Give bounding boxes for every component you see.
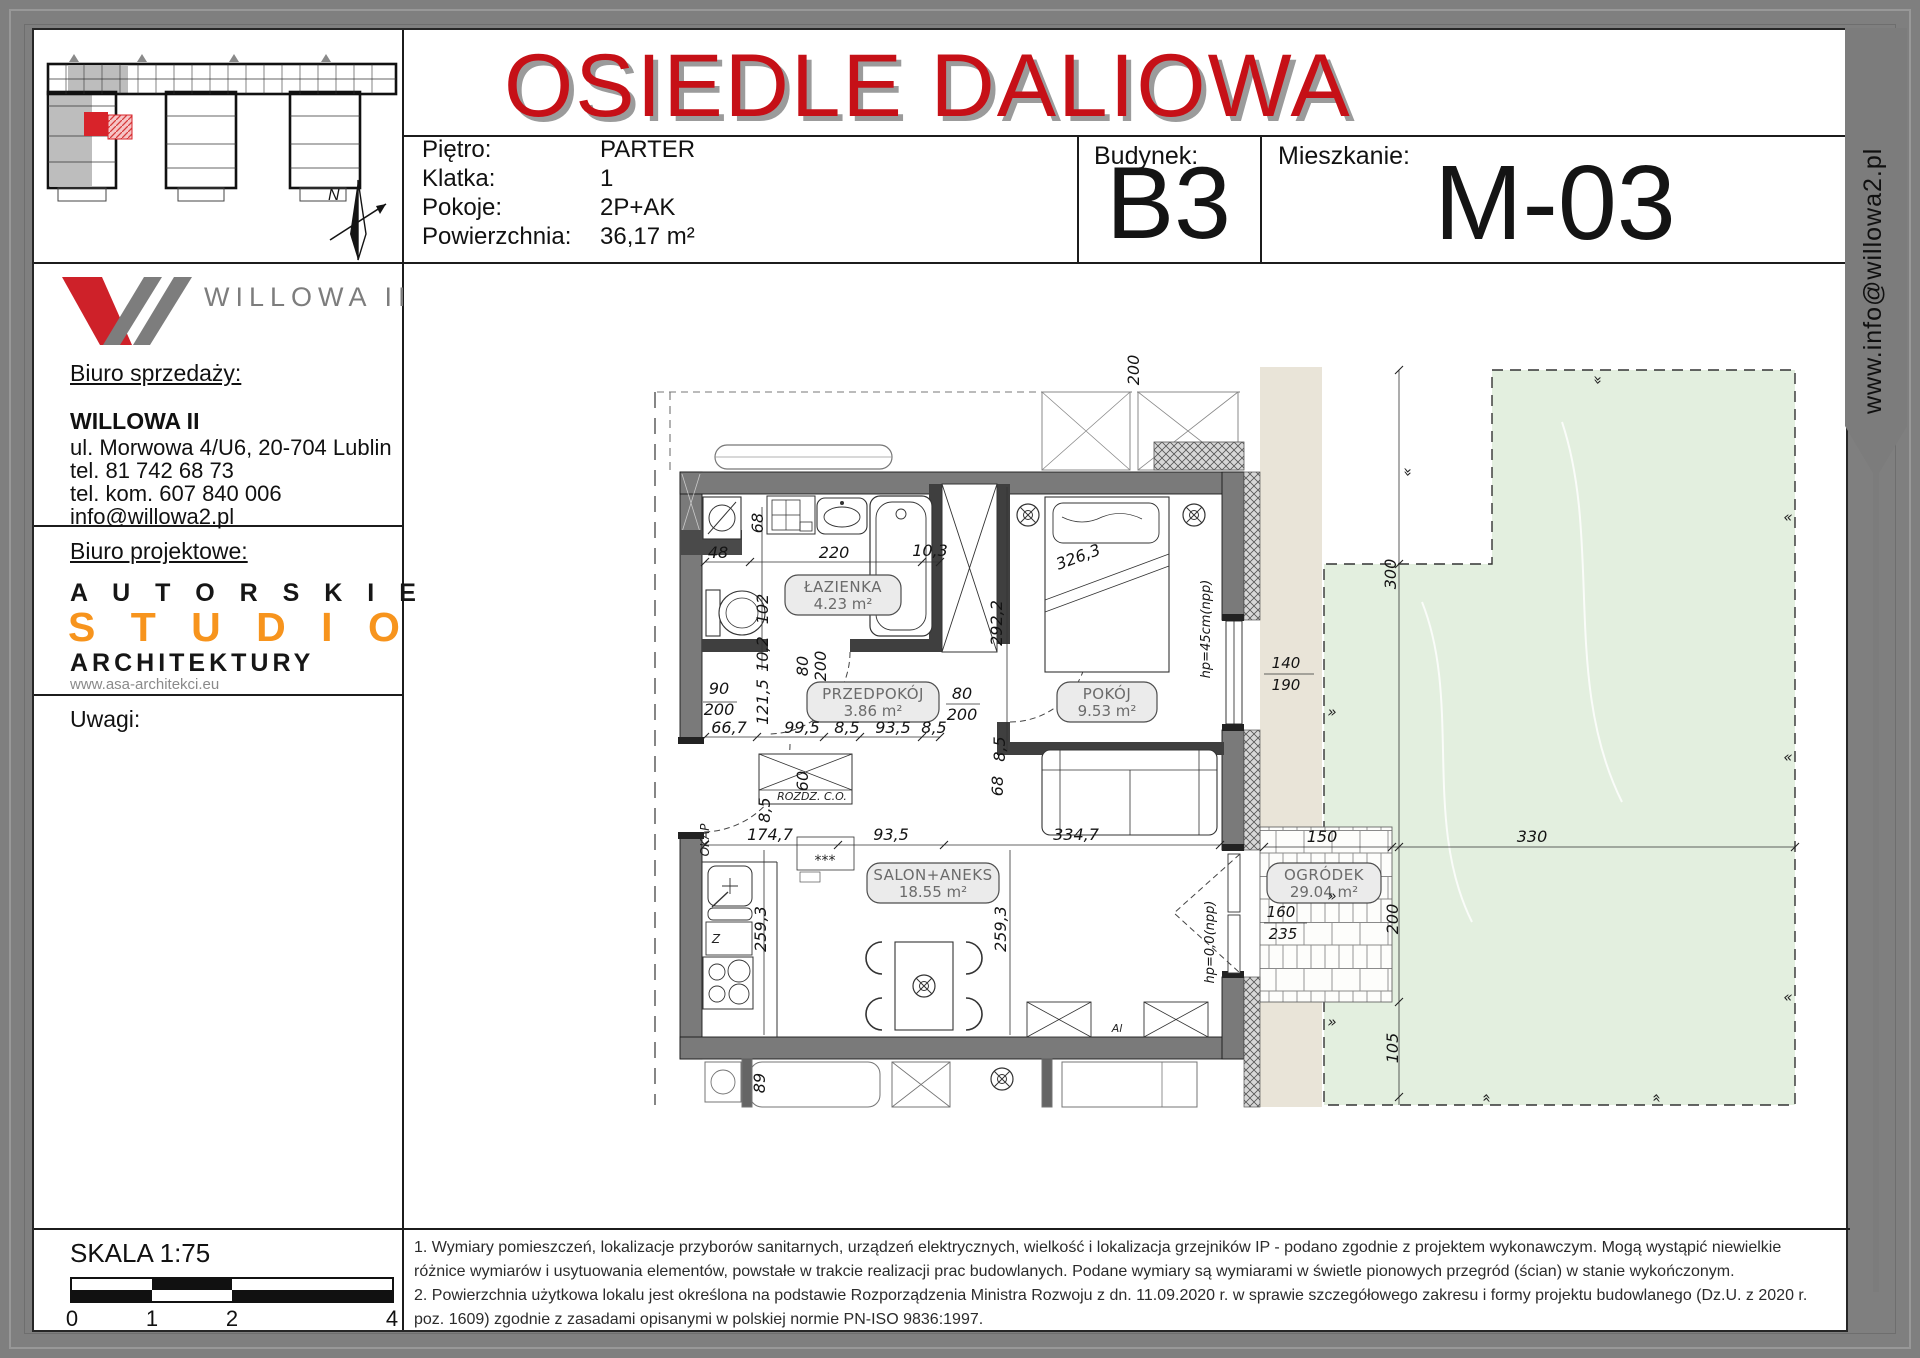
scale-tick-0: 0	[66, 1306, 78, 1332]
bed	[1045, 497, 1169, 672]
plan-annotation: «	[1783, 748, 1792, 766]
plan-dimension: 140	[1272, 654, 1301, 672]
scale-label: SKALA 1:75	[70, 1238, 210, 1269]
plan-dimension: 10,2	[753, 636, 772, 672]
plan-dimension: 89	[750, 1073, 769, 1093]
plan-dimension: 259,3	[991, 906, 1010, 952]
plan-dimension: 330	[1517, 827, 1548, 846]
plan-dimension: 68	[748, 513, 767, 533]
plan-dimension: 8,5	[990, 736, 1009, 761]
scale-bar	[70, 1277, 394, 1303]
plan-annotation: «	[1327, 888, 1336, 906]
sofa	[1042, 750, 1217, 835]
plan-annotation: OKAP	[698, 823, 712, 857]
footnotes: 1. Wymiary pomieszczeń, lokalizacje przy…	[414, 1236, 1834, 1332]
plan-dimension: 80	[952, 684, 972, 703]
plan-dimension: 259,3	[751, 906, 770, 952]
plan-dimension: 105	[1383, 1033, 1402, 1064]
plan-dimension: 68	[988, 776, 1007, 796]
room-name: POKÓJ	[1083, 684, 1132, 703]
room-area: 18.55 m²	[899, 883, 967, 901]
website-ribbon: www.info@willowa2.pl	[1845, 28, 1907, 426]
wall-right-1	[1222, 472, 1244, 620]
highlighted-unit	[84, 112, 108, 136]
highlighted-garden	[108, 115, 132, 139]
plan-annotation: Z	[711, 932, 721, 946]
plan-dimension: 121,5	[753, 679, 772, 725]
budynek-value: B3	[1077, 152, 1260, 254]
footnote-2: 2. Powierzchnia użytkowa lokalu jest okr…	[414, 1284, 1834, 1332]
plan-annotation: Al	[1111, 1022, 1123, 1035]
plan-annotation: «	[1588, 375, 1606, 384]
plan-dimension: hp=0,0(npp)	[1203, 901, 1218, 984]
sales-office-heading: Biuro sprzedaży:	[70, 360, 241, 387]
plan-annotation: ***	[815, 853, 836, 869]
footnote-1: 1. Wymiary pomieszczeń, lokalizacje przy…	[414, 1236, 1834, 1284]
scale-tick-2: 2	[226, 1306, 238, 1332]
drawing-sheet: OSIEDLE DALIOWA Piętro: PARTER Klatka: 1…	[0, 0, 1920, 1358]
room-area: 4.23 m²	[814, 595, 873, 613]
plan-dimension: 200	[1383, 904, 1402, 935]
info-value-powierzchnia: 36,17 m²	[600, 223, 695, 251]
plan-dimension: 60	[793, 771, 812, 791]
website-ribbon-text: www.info@willowa2.pl	[1859, 44, 1888, 414]
studio-logo-line3: ARCHITEKTURY	[70, 649, 314, 678]
plan-dimension: 190	[1272, 676, 1301, 694]
plan-dimension: 102	[753, 594, 772, 625]
plan-dimension: 90	[709, 679, 729, 698]
plan-dimension: 200	[811, 651, 830, 682]
plan-dimension: 93,5	[875, 718, 911, 737]
sales-company: WILLOWA II	[70, 408, 199, 435]
sales-email: info@willowa2.pl	[70, 504, 234, 530]
info-label-klatka: Klatka:	[422, 165, 495, 193]
plan-dimension: 8,5	[755, 797, 774, 822]
wall-right-3	[1222, 977, 1244, 1059]
toilet	[706, 590, 720, 636]
plan-annotation: «	[1478, 1093, 1496, 1102]
plan-dimension: 174,7	[747, 825, 794, 844]
info-value-pokoje: 2P+AK	[600, 194, 675, 222]
willowa-logo-icon	[56, 273, 201, 351]
room-name: ŁAZIENKA	[803, 578, 882, 596]
plan-dimension: hp=45cm(npp)	[1199, 580, 1214, 679]
garden-area	[1324, 370, 1795, 1105]
plan-dimension: 200	[947, 705, 978, 724]
plan-dimension: 8,5	[921, 718, 946, 737]
studio-website: www.asa-architekci.eu	[70, 676, 219, 693]
north-letter: N	[328, 187, 340, 204]
plan-annotation: «	[1327, 1014, 1336, 1032]
design-office-heading: Biuro projektowe:	[70, 538, 248, 565]
willowa-logo-text: WILLOWA II	[204, 282, 412, 313]
plan-dimension: 292,2	[987, 600, 1006, 646]
plan-annotation: «	[1783, 508, 1792, 526]
divider-sidebar-2	[34, 694, 402, 696]
plan-annotation: «	[1327, 704, 1336, 722]
info-label-pokoje: Pokoje:	[422, 194, 502, 222]
studio-logo-line2: S T U D I O	[68, 604, 412, 651]
plan-dimension: 235	[1269, 925, 1298, 943]
website-ribbon-stem	[1873, 470, 1879, 1292]
room-area: 29.04 m²	[1290, 883, 1358, 901]
north-compass: N	[312, 176, 402, 262]
plan-dimension: 99,5	[784, 718, 820, 737]
plan-dimension: 93,5	[873, 825, 909, 844]
room-name: OGRÓDEK	[1284, 865, 1365, 884]
divider-footer	[34, 1228, 1850, 1230]
plan-annotation: «	[1398, 467, 1416, 476]
scale-tick-4: 4	[386, 1306, 398, 1332]
wall-right-2	[1222, 730, 1244, 850]
plan-dimension: 220	[819, 543, 850, 562]
plan-annotation: ROZDZ. C.O.	[777, 790, 847, 803]
plan-dimension: 48	[708, 543, 728, 562]
floor-plan-svg: ŁAZIENKA4.23 m²PRZEDPOKÓJ3.86 m²POKÓJ9.5…	[402, 264, 1850, 1228]
plan-dimension: 80	[793, 656, 812, 676]
room-area: 9.53 m²	[1078, 702, 1137, 720]
project-title: OSIEDLE DALIOWA	[504, 34, 1352, 137]
plan-dimension: 300	[1381, 559, 1400, 590]
plan-dimension: 66,7	[711, 718, 747, 737]
info-label-pietro: Piętro:	[422, 136, 491, 164]
plan-dimension: 10,3	[912, 541, 948, 560]
info-label-powierzchnia: Powierzchnia:	[422, 223, 571, 251]
wall-bottom	[680, 1037, 1244, 1059]
mieszkanie-value: M-03	[1260, 150, 1850, 256]
uwagi-label: Uwagi:	[70, 706, 140, 733]
plan-dimension: 160	[1267, 903, 1296, 921]
plan-annotation: «	[1648, 1093, 1666, 1102]
plan-annotation: «	[1783, 988, 1792, 1006]
plan-dimension: 334,7	[1053, 825, 1100, 844]
scale-tick-1: 1	[146, 1306, 158, 1332]
room-name: SALON+ANEKS	[873, 866, 992, 884]
room-name: PRZEDPOKÓJ	[822, 684, 924, 703]
plan-dimension: 200	[1124, 355, 1143, 386]
sheet-page: OSIEDLE DALIOWA Piętro: PARTER Klatka: 1…	[32, 28, 1848, 1332]
plan-dimension: 200	[704, 700, 735, 719]
plan-dimension: 8,5	[834, 718, 859, 737]
info-value-pietro: PARTER	[600, 136, 695, 164]
info-value-klatka: 1	[600, 165, 613, 193]
plan-dimension: 150	[1307, 827, 1338, 846]
